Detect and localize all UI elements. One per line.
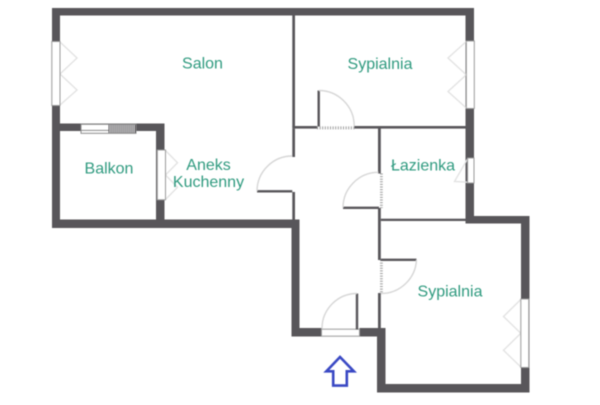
svg-text:Balkon: Balkon	[85, 161, 134, 178]
svg-text:Salon: Salon	[182, 56, 223, 73]
svg-text:Łazienka: Łazienka	[391, 158, 455, 175]
svg-text:Sypialnia: Sypialnia	[348, 56, 413, 73]
svg-text:Kuchenny: Kuchenny	[173, 174, 244, 191]
svg-text:Aneks: Aneks	[186, 157, 230, 174]
svg-text:Sypialnia: Sypialnia	[418, 284, 483, 301]
